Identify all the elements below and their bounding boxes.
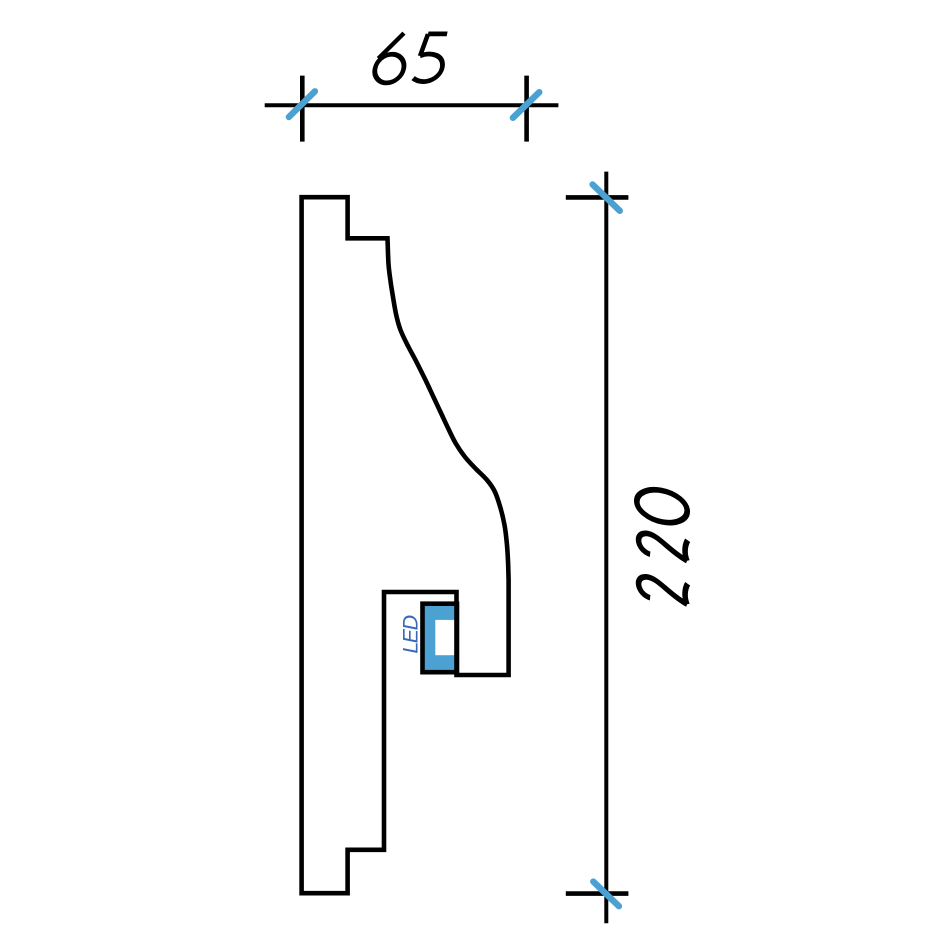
svg-text:LED: LED: [399, 615, 423, 653]
